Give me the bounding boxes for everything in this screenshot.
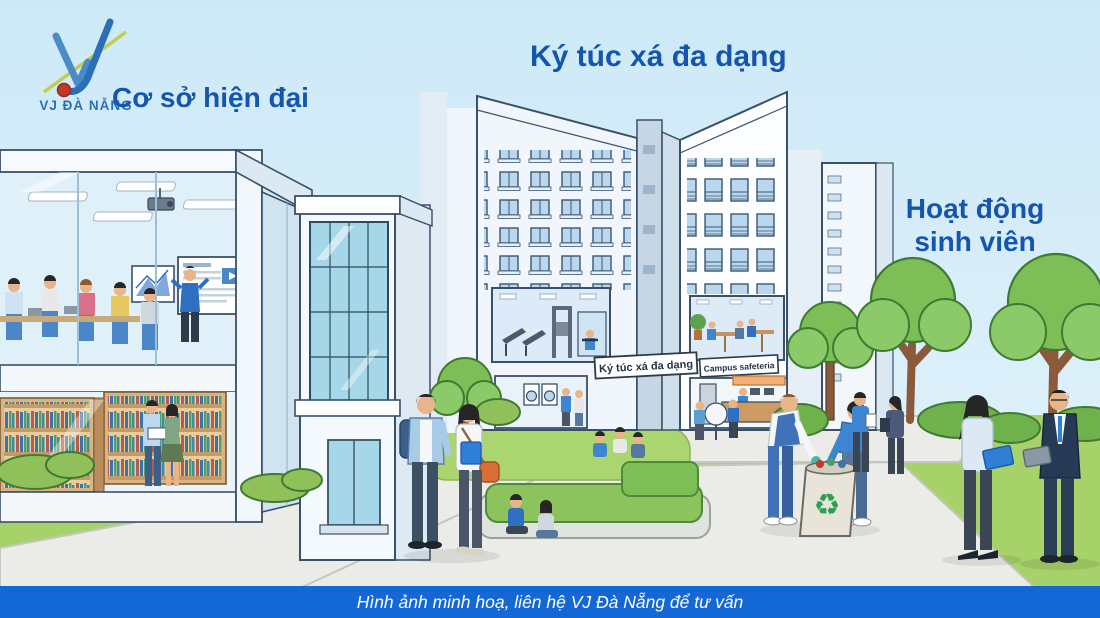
awning (733, 376, 785, 385)
dorm-right-windows (687, 158, 782, 294)
dormitory-signboard: Ký túc xá đa dạng (594, 352, 697, 378)
outdoor-dining (694, 400, 739, 441)
dorm-left-windows (484, 150, 631, 290)
paper-sheet (866, 414, 876, 427)
gym-room (492, 288, 610, 362)
cafeteria-signboard: Campus safeteria (700, 355, 779, 377)
roof-fascia (0, 150, 236, 172)
caption-dormitory: Ký túc xá đa dạng (530, 40, 787, 74)
recycle-icon: ♻ (814, 489, 841, 522)
caption-activities-line1: Hoạt động (885, 192, 1065, 225)
footer-bar: Hình ảnh minh hoạ, liên hệ VJ Đà Nẵng để… (0, 586, 1100, 618)
logo-dot (58, 84, 71, 97)
tablet (880, 418, 890, 432)
classroom-desk (0, 316, 140, 322)
footer-note: Hình ảnh minh hoạ, liên hệ VJ Đà Nẵng để… (357, 592, 744, 613)
glass-entrance-tower (295, 196, 432, 560)
table (705, 403, 727, 425)
plant-icon (690, 314, 706, 330)
caption-activities: Hoạt động sinh viên (885, 192, 1065, 258)
campus-illustration: VJ ĐÀ NẴNG Cơ sở hiện đại Ký túc xá đa d… (0, 0, 1100, 618)
dormitory-towers: Ký túc xá đa dạng Campus safeteria (477, 92, 787, 440)
dorm-connector (637, 120, 662, 430)
caption-facilities: Cơ sở hiện đại (112, 82, 309, 114)
recycle-bag: ♻ (800, 458, 856, 536)
logo-v-stroke (56, 36, 88, 84)
blue-folder (461, 442, 481, 464)
building-pillar (236, 150, 262, 522)
caption-activities-line2: sinh viên (885, 225, 1065, 258)
logo-j-stroke (64, 22, 110, 91)
gym-machine-icon (552, 306, 556, 358)
common-room (690, 296, 784, 360)
shoulder-bag (480, 462, 499, 482)
gray-clipboard (1023, 446, 1052, 467)
